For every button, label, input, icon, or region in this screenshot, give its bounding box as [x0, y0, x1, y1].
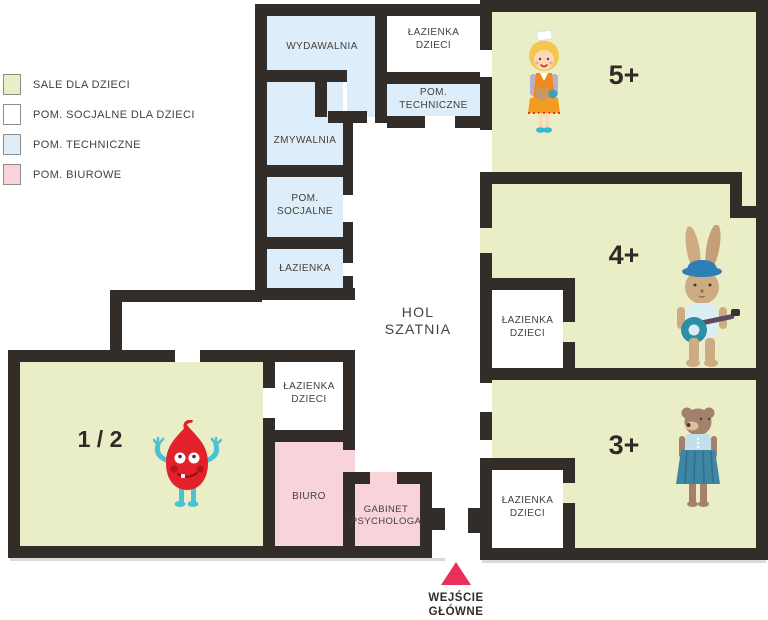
legend-swatch-pom-biurowe [3, 164, 21, 185]
label-line: ŁAZIENKA [275, 380, 343, 393]
wall [563, 342, 575, 368]
wall [563, 470, 575, 483]
wall [255, 165, 343, 177]
legend-item-pom-socjalne: POM. SOCJALNE DLA DZIECI [3, 104, 195, 125]
room-wydawalnia-passage [347, 16, 375, 117]
legend-item-pom-biurowe: POM. BIUROWE [3, 164, 195, 185]
label-line: ŁAZIENKA [387, 26, 480, 39]
legend-label: POM. TECHNICZNE [33, 139, 141, 151]
wall [255, 4, 492, 16]
label-line: DZIECI [387, 39, 480, 52]
wall [480, 368, 768, 380]
room-sala-1-2 [20, 362, 263, 546]
floor-plan: SALE DLA DZIECI POM. SOCJALNE DLA DZIECI… [0, 0, 768, 620]
label-line: DZIECI [488, 327, 567, 340]
wall [480, 12, 492, 50]
label-sala-1-2: 1 / 2 [52, 426, 148, 453]
label-zmywalnia: ZMYWALNIA [267, 134, 343, 147]
wall-shadow [10, 558, 445, 561]
label-sala-4: 4+ [576, 240, 672, 271]
label-line: HOL [358, 304, 478, 321]
rabbit-character-icon [663, 225, 743, 368]
label-pom-socjalne: POM. SOCJALNE [267, 192, 343, 218]
label-line: POM. [387, 86, 480, 99]
label-hol-szatnia: HOL SZATNIA [358, 304, 478, 338]
wall [110, 290, 262, 302]
label-line: DZIECI [488, 507, 567, 520]
wall [263, 418, 275, 546]
wall [455, 116, 480, 128]
legend: SALE DLA DZIECI POM. SOCJALNE DLA DZIECI… [3, 74, 195, 194]
label-sala-3: 3+ [576, 430, 672, 461]
wall [343, 276, 353, 288]
door-gap-sala-4 [480, 228, 492, 253]
label-entrance: WEJŚCIE GŁÓWNE [406, 591, 506, 619]
wall [8, 350, 20, 558]
legend-label: POM. BIUROWE [33, 169, 122, 181]
wall [480, 458, 575, 470]
label-lazienka-dzieci-4: ŁAZIENKA DZIECI [488, 314, 567, 340]
legend-label: SALE DLA DZIECI [33, 79, 130, 91]
wall [432, 508, 445, 530]
wall [742, 206, 768, 218]
label-line: GABINET [341, 504, 431, 516]
wall [315, 82, 327, 117]
label-line: PSYCHOLOGA [341, 516, 431, 528]
wall [387, 72, 480, 84]
wall [328, 111, 367, 123]
label-line: WEJŚCIE [406, 591, 506, 605]
legend-swatch-pom-techniczne [3, 134, 21, 155]
wall [343, 222, 353, 249]
wall [255, 237, 343, 249]
label-gabinet-psychologa: GABINET PSYCHOLOGA [341, 504, 431, 528]
wall [343, 350, 355, 450]
label-biuro: BIURO [275, 490, 343, 503]
label-line: SOCJALNE [267, 205, 343, 218]
legend-swatch-pom-socjalne [3, 104, 21, 125]
wall [255, 288, 355, 300]
wall [480, 412, 492, 440]
bear-character-icon [668, 405, 728, 510]
wall [343, 123, 353, 177]
legend-label: POM. SOCJALNE DLA DZIECI [33, 109, 195, 121]
legend-item-sale-dla-dzieci: SALE DLA DZIECI [3, 74, 195, 95]
girl-character-icon [515, 30, 573, 148]
wall [263, 350, 275, 388]
legend-swatch-sale-dla-dzieci [3, 74, 21, 95]
door-gap-biuro [343, 450, 355, 472]
label-line: ŁAZIENKA [488, 314, 567, 327]
wall [343, 249, 353, 263]
wall [255, 4, 267, 300]
wall [756, 0, 768, 560]
room-zmywalnia [267, 82, 343, 177]
label-line: POM. [267, 192, 343, 205]
wall [730, 172, 742, 218]
label-line: ŁAZIENKA [488, 494, 567, 507]
wall [480, 172, 730, 184]
legend-item-pom-techniczne: POM. TECHNICZNE [3, 134, 195, 155]
wall [343, 177, 353, 195]
label-line: SZATNIA [358, 321, 478, 338]
wall [200, 350, 353, 362]
door-gap-gabinet [370, 472, 397, 484]
label-lazienka-dzieci-3: ŁAZIENKA DZIECI [488, 494, 567, 520]
wall [480, 278, 575, 290]
wall [480, 0, 768, 12]
wall [343, 472, 370, 484]
label-pom-techniczne: POM. TECHNICZNE [387, 86, 480, 112]
wall [480, 548, 768, 560]
wall [468, 508, 480, 533]
label-wydawalnia: WYDAWALNIA [267, 40, 377, 53]
wall [8, 546, 432, 558]
wall-shadow [482, 560, 766, 563]
label-sala-5: 5+ [576, 60, 672, 91]
label-line: TECHNICZNE [387, 99, 480, 112]
label-lazienka: ŁAZIENKA [267, 262, 343, 275]
wall [275, 430, 343, 442]
entrance-arrow-icon [441, 562, 471, 585]
red-monster-character-icon [150, 420, 225, 510]
wall [480, 77, 492, 130]
wall [387, 116, 425, 128]
label-line: GŁÓWNE [406, 605, 506, 619]
label-line: DZIECI [275, 393, 343, 406]
label-lazienka-dzieci-top: ŁAZIENKA DZIECI [387, 26, 480, 52]
wall [375, 4, 387, 123]
label-lazienka-dzieci-12: ŁAZIENKA DZIECI [275, 380, 343, 406]
wall [8, 350, 175, 362]
wall [255, 70, 347, 82]
